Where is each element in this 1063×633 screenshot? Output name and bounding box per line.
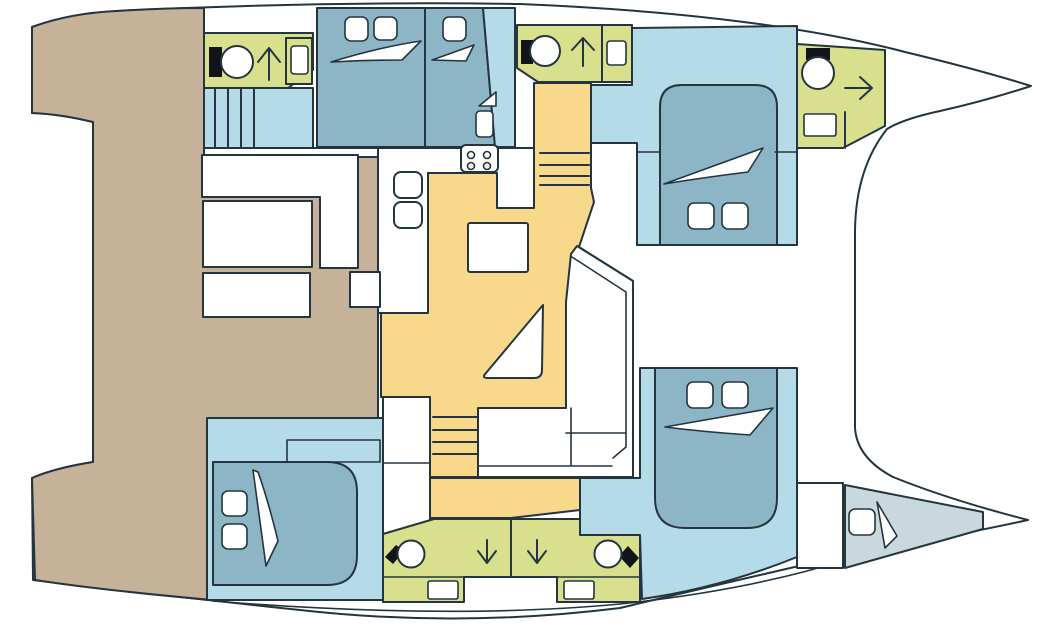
salon-aft-floor-strip bbox=[430, 478, 580, 518]
cabin-starboard-aft-bed bbox=[655, 368, 777, 528]
pillow bbox=[374, 17, 397, 40]
toilet-starboard-aft bbox=[530, 36, 560, 66]
cabin-port-aft-bed-area bbox=[317, 8, 495, 147]
bow-locker bbox=[797, 483, 843, 568]
forepeak-window bbox=[849, 509, 875, 535]
pillow bbox=[688, 203, 714, 229]
galley-stove bbox=[461, 145, 498, 172]
salon-table bbox=[468, 223, 528, 272]
toilet-port-mid bbox=[398, 541, 425, 568]
stairs-port-aft-area bbox=[204, 88, 313, 148]
cockpit-table bbox=[203, 201, 312, 267]
pillow bbox=[222, 524, 247, 549]
galley-sink bbox=[394, 172, 422, 198]
pillow bbox=[443, 17, 466, 41]
cockpit-bench bbox=[203, 273, 310, 317]
pillow bbox=[722, 203, 748, 229]
port-hull-corridor bbox=[383, 397, 430, 535]
bathroom-port-aft-sink bbox=[291, 46, 308, 74]
bathroom-port-mid-sink bbox=[428, 581, 458, 599]
bathroom-bow-sink bbox=[804, 114, 836, 136]
cockpit-seat bbox=[350, 272, 380, 307]
cabin-port-shelf bbox=[287, 440, 380, 462]
pillow bbox=[687, 382, 713, 408]
catamaran-floor-plan bbox=[0, 0, 1063, 633]
toilet-starboard-bow bbox=[802, 57, 834, 89]
bathroom-starboard-mid-sink bbox=[564, 581, 594, 599]
pillow bbox=[345, 17, 368, 41]
galley-sink bbox=[394, 202, 422, 228]
deck-plan-svg bbox=[0, 0, 1063, 633]
pillow bbox=[722, 382, 748, 408]
toilet-port-aft bbox=[221, 46, 253, 78]
bathroom-starboard-aft-sink bbox=[607, 41, 626, 65]
pillow bbox=[222, 491, 247, 516]
toilet-starboard-mid bbox=[595, 541, 622, 568]
mast-step bbox=[476, 111, 493, 137]
